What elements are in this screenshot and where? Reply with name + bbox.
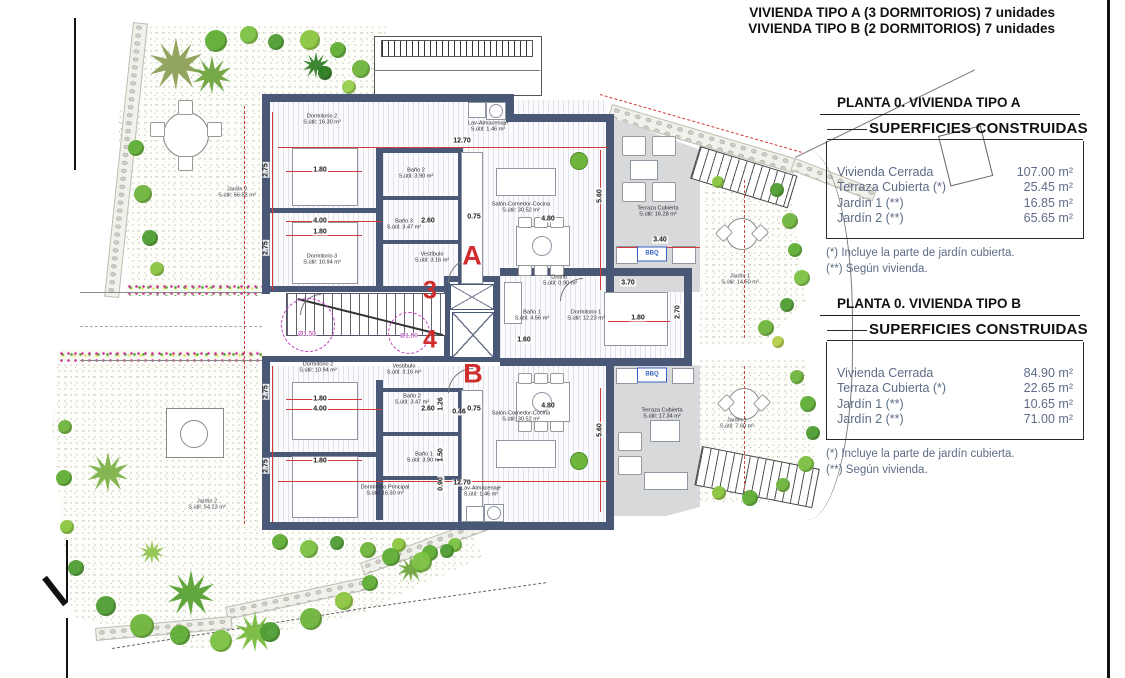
shrub-icon xyxy=(210,630,232,652)
dimension-label: 2.70 xyxy=(675,304,682,320)
room-label: Lav-Almacenaje S.útil: 1.46 m² xyxy=(468,121,508,134)
garden-chair xyxy=(150,122,165,137)
unit-letter: A xyxy=(462,243,482,270)
room-label: Baño 1 S.útil: 3.90 m² xyxy=(407,452,442,465)
room-label: Dormitorio 1 S.útil: 12.23 m² xyxy=(567,310,605,323)
sofa xyxy=(496,168,556,196)
shrub-icon xyxy=(96,596,116,616)
panel-a-rows: Vivienda Cerrada 107.00 m² Terraza Cubie… xyxy=(837,165,1073,226)
surface-label: Jardín 1 (**) xyxy=(837,196,904,211)
room-label: Terraza Cubierta S.útil: 17.34 m² xyxy=(641,408,682,421)
unit-letter: B xyxy=(463,361,483,388)
garden-label: Jardín 1 S.útil: 7.60 m² xyxy=(720,418,755,431)
surface-value: 10.65 m² xyxy=(1024,397,1073,412)
shrub-icon xyxy=(790,370,804,384)
room-area: S.útil: 10.94 m² xyxy=(299,368,337,374)
room-area: S.útil: 16.30 m² xyxy=(303,120,341,126)
section-mark xyxy=(66,618,68,678)
garden-label: Jardín 2 S.útil: 56.52 m² xyxy=(218,187,256,200)
room-area: S.útil: 30.52 m² xyxy=(492,208,550,214)
shrub-icon xyxy=(794,270,810,286)
dimension-label: 2.75 xyxy=(263,458,270,474)
garden-table xyxy=(163,112,209,158)
upper-terrace-railing xyxy=(381,40,533,57)
dimension-label: 4.00 xyxy=(312,406,328,413)
garden-chair xyxy=(207,122,222,137)
surface-row: Terraza Cubierta (*) 25.45 m² xyxy=(837,180,1073,195)
room-label: Salón-Comedor-Cocina S.útil: 30.52 m² xyxy=(492,411,550,424)
shrub-icon xyxy=(788,243,802,257)
wall xyxy=(262,356,464,362)
partition xyxy=(262,208,382,213)
panel-b-notes: (*) Incluye la parte de jardín cubierta.… xyxy=(826,447,1082,478)
washer xyxy=(466,506,484,522)
dimension-label: 1.80 xyxy=(312,458,328,465)
terrace-chair xyxy=(622,182,646,202)
shrub-icon xyxy=(142,230,158,246)
path-centerline xyxy=(80,326,262,327)
surface-value: 22.65 m² xyxy=(1024,381,1073,396)
dimension-label: 2.75 xyxy=(263,240,270,256)
panel-tipo-b: PLANTA 0. VIVIENDA TIPO B SUPERFICIES CO… xyxy=(820,296,1082,478)
washer-drum xyxy=(487,506,501,520)
shrub-icon xyxy=(780,298,794,312)
surface-label: Vivienda Cerrada xyxy=(837,366,933,381)
dimension-label: 3.40 xyxy=(652,237,668,244)
garden-area: S.útil: 7.60 m² xyxy=(720,424,755,430)
surface-label: Terraza Cubierta (*) xyxy=(837,180,946,195)
diameter-label: Ø1,50 xyxy=(298,331,316,338)
shrub-icon xyxy=(240,26,258,44)
drawing-title: VIVIENDA TIPO A (3 DORMITORIOS) 7 unidad… xyxy=(748,5,1055,37)
wall xyxy=(606,114,614,292)
dimension-label: 1.60 xyxy=(516,337,532,344)
outdoor-counter xyxy=(616,246,638,264)
sheet-border-left xyxy=(74,18,76,170)
terrace-sofa xyxy=(644,472,688,490)
shrub-icon xyxy=(130,614,154,638)
shrub-icon xyxy=(170,625,190,645)
washer-drum xyxy=(489,104,503,118)
garden-chair xyxy=(178,100,193,115)
garden-area: S.útil: 56.52 m² xyxy=(218,193,256,199)
dimension-label: 4.80 xyxy=(540,216,556,223)
partition xyxy=(383,196,463,200)
room-label: Terraza Cubierta S.útil: 16.28 m² xyxy=(637,206,678,219)
surface-row: Jardín 1 (**) 10.65 m² xyxy=(837,397,1073,412)
shrub-icon xyxy=(330,42,346,58)
shrub-icon xyxy=(382,548,400,566)
footnote: (*) Incluye la parte de jardín cubierta. xyxy=(826,246,1082,262)
room-area: S.útil: 12.23 m² xyxy=(567,316,605,322)
diameter-label: Ø1,50 xyxy=(400,333,418,340)
wall xyxy=(684,268,692,366)
room-label: Distrib. S.útil: 0.90 m² xyxy=(543,275,578,288)
surface-row: Jardín 2 (**) 71.00 m² xyxy=(837,412,1073,427)
shrub-icon xyxy=(134,185,152,203)
elevator-wall xyxy=(494,276,500,362)
chair xyxy=(550,421,564,432)
terrace-table xyxy=(630,160,658,180)
table-lamp xyxy=(532,236,552,256)
partition xyxy=(376,148,383,288)
room-label: Vestíbulo S.útil: 3.16 m² xyxy=(387,364,422,377)
outdoor-counter xyxy=(672,246,696,264)
shrub-icon xyxy=(772,336,784,348)
room-area: S.útil: 3.16 m² xyxy=(387,370,422,376)
chair xyxy=(518,265,532,276)
surface-label: Terraza Cubierta (*) xyxy=(837,381,946,396)
room-label: Dormitorio Principal S.útil: 16.30 m² xyxy=(361,485,410,498)
bbq-box: BBQ xyxy=(637,368,667,383)
plant-pot xyxy=(570,452,588,470)
room-area: S.útil: 3.90 m² xyxy=(407,458,442,464)
dim-line xyxy=(286,221,382,222)
garden-chair xyxy=(178,156,193,171)
wall xyxy=(262,94,474,102)
shrub-icon xyxy=(56,470,72,486)
panel-b-rule xyxy=(820,315,1080,316)
room-area: S.útil: 1.46 m² xyxy=(468,127,508,133)
elevator-cab xyxy=(450,284,494,310)
partition xyxy=(376,380,383,520)
boundary-red-dashed xyxy=(244,106,245,524)
room-area: S.útil: 3.90 m² xyxy=(399,174,434,180)
wall xyxy=(506,114,614,122)
panel-b-rows: Vivienda Cerrada 84.90 m² Terraza Cubier… xyxy=(837,366,1073,427)
chair xyxy=(518,217,532,228)
bbq-box: BBQ xyxy=(637,247,667,262)
shrub-icon xyxy=(300,540,318,558)
garden-area: S.útil: 14.50 m² xyxy=(721,280,759,286)
surface-label: Jardín 2 (**) xyxy=(837,211,904,226)
panel-a-rule xyxy=(820,114,1080,115)
room-label: Dormitorio 3 S.útil: 10.94 m² xyxy=(303,254,341,267)
shrub-icon xyxy=(128,140,144,156)
shrub-icon xyxy=(758,320,774,336)
dimension-label: 2.60 xyxy=(420,218,436,225)
shrub-icon xyxy=(272,534,288,550)
room-area: S.útil: 16.30 m² xyxy=(361,491,410,497)
wall xyxy=(606,360,614,528)
surface-label: Jardín 2 (**) xyxy=(837,412,904,427)
surface-row: Terraza Cubierta (*) 22.65 m² xyxy=(837,381,1073,396)
bed xyxy=(292,148,358,206)
outdoor-counter xyxy=(672,368,694,384)
room-area: S.útil: 3.47 m² xyxy=(387,225,422,231)
shrub-icon xyxy=(362,575,378,591)
garden-area: S.útil: 54.23 m² xyxy=(188,505,226,511)
terrace-chair xyxy=(618,432,642,451)
dimension-label: 5.60 xyxy=(597,422,604,438)
shrub-icon xyxy=(712,486,726,500)
garden-label: Jardín 1 S.útil: 14.50 m² xyxy=(721,274,759,287)
chair xyxy=(518,373,532,384)
shrub-icon xyxy=(770,183,784,197)
footnote: (*) Incluye la parte de jardín cubierta. xyxy=(826,447,1082,463)
room-area: S.útil: 16.28 m² xyxy=(637,212,678,218)
bed xyxy=(292,456,358,518)
garden-red-dashed xyxy=(744,180,745,338)
dimension-label: 1.50 xyxy=(438,447,445,463)
unit-letter: 3 xyxy=(423,279,437,304)
surface-value: 84.90 m² xyxy=(1024,366,1073,381)
title-line-b: VIVIENDA TIPO B (2 DORMITORIOS) 7 unidad… xyxy=(748,21,1055,37)
picnic-table-top xyxy=(180,420,208,448)
upper-terrace-line xyxy=(374,70,540,71)
surface-label: Jardín 1 (**) xyxy=(837,397,904,412)
shrub-icon xyxy=(806,426,820,440)
shrub-icon xyxy=(800,396,816,412)
room-area: S.útil: 30.52 m² xyxy=(492,417,550,423)
section-mark-diagonal xyxy=(42,576,68,606)
panel-a-notes: (*) Incluye la parte de jardín cubierta.… xyxy=(826,246,1082,277)
shrub-icon xyxy=(150,262,164,276)
room-area: S.útil: 0.90 m² xyxy=(543,281,578,287)
dimension-label: 12.70 xyxy=(452,480,472,487)
shrub-icon xyxy=(782,213,798,229)
terrace-chair xyxy=(622,136,646,156)
room-label: Baño 1 S.útil: 4.56 m² xyxy=(515,310,550,323)
shrub-icon xyxy=(360,542,376,558)
shrub-icon xyxy=(440,544,454,558)
room-area: S.útil: 1.46 m² xyxy=(461,492,501,498)
room-label: Lav-Almacenaje S.útil: 1.46 m² xyxy=(461,486,501,499)
shrub-icon xyxy=(68,560,84,576)
dimension-label: 3.70 xyxy=(620,280,636,287)
dimension-label: 0.75 xyxy=(466,406,482,413)
dimension-label: 12.70 xyxy=(452,138,472,145)
surface-row: Vivienda Cerrada 107.00 m² xyxy=(837,165,1073,180)
box-top-segment xyxy=(827,330,867,331)
shrub-icon xyxy=(60,520,74,534)
dimension-label: 1.80 xyxy=(312,229,328,236)
sheet-border-right xyxy=(1107,0,1110,678)
room-label: Vestíbulo S.útil: 3.16 m² xyxy=(415,252,450,265)
unit-letter: 4 xyxy=(423,328,437,353)
dimension-label: 4.80 xyxy=(540,403,556,410)
shrub-icon xyxy=(260,622,280,642)
shrub-icon xyxy=(342,80,356,94)
palm-icon xyxy=(168,570,214,616)
room-area: S.útil: 17.34 m² xyxy=(641,414,682,420)
palm-icon xyxy=(88,452,128,492)
surface-value: 16.85 m² xyxy=(1024,196,1073,211)
dim-line xyxy=(272,366,273,522)
dimension-label: 1.26 xyxy=(438,396,445,412)
dim-line xyxy=(278,147,608,148)
wall xyxy=(262,522,614,530)
dimension-label: 0.46 xyxy=(451,409,467,416)
chair xyxy=(534,373,548,384)
shrub-icon xyxy=(712,176,724,188)
sofa xyxy=(496,440,556,468)
shrub-icon xyxy=(58,420,72,434)
shrub-icon xyxy=(742,490,758,506)
shrub-icon xyxy=(798,456,814,472)
shrub-icon xyxy=(776,478,790,492)
room-label: Baño 2 S.útil: 3.90 m² xyxy=(399,168,434,181)
outdoor-counter xyxy=(616,368,638,384)
room-label: Baño 3 S.útil: 3.47 m² xyxy=(387,219,422,232)
flower-bed-top xyxy=(126,283,262,296)
shrub-icon xyxy=(300,608,322,630)
shrub-icon xyxy=(318,66,332,80)
dim-line xyxy=(600,388,601,512)
panel-b-surface-box: SUPERFICIES CONSTRUIDAS Vivienda Cerrada… xyxy=(826,342,1084,440)
shrub-icon xyxy=(352,60,370,78)
path-edge-top xyxy=(80,292,262,293)
surface-value: 65.65 m² xyxy=(1024,211,1073,226)
wall xyxy=(500,358,692,366)
surface-row: Vivienda Cerrada 84.90 m² xyxy=(837,366,1073,381)
title-line-a: VIVIENDA TIPO A (3 DORMITORIOS) 7 unidad… xyxy=(748,5,1055,21)
dim-line xyxy=(600,150,601,290)
shrub-icon xyxy=(205,30,227,52)
chair xyxy=(550,373,564,384)
partition xyxy=(383,240,463,244)
room-label: Dormitorio 2 S.útil: 10.94 m² xyxy=(299,362,337,375)
shrub-icon xyxy=(412,552,432,572)
surface-row: Jardín 1 (**) 16.85 m² xyxy=(837,196,1073,211)
dimension-label: 2.75 xyxy=(263,384,270,400)
surface-row: Jardín 2 (**) 65.65 m² xyxy=(837,211,1073,226)
panel-b-title: PLANTA 0. VIVIENDA TIPO B xyxy=(837,296,1082,311)
dim-line xyxy=(272,112,273,290)
room-area: S.útil: 10.94 m² xyxy=(303,260,341,266)
box-title-rule xyxy=(827,139,1083,140)
shrub-icon xyxy=(300,30,320,50)
terrace-table xyxy=(650,420,680,442)
terrace-chair xyxy=(618,456,642,475)
terrace-chair xyxy=(652,136,676,156)
partition xyxy=(383,476,463,480)
room-area: S.útil: 4.56 m² xyxy=(515,316,550,322)
panel-b-box-title: SUPERFICIES CONSTRUIDAS xyxy=(869,321,1088,338)
shrub-icon xyxy=(330,536,344,550)
surface-value: 71.00 m² xyxy=(1024,412,1073,427)
panel-a-surface-box: SUPERFICIES CONSTRUIDAS Vivienda Cerrada… xyxy=(826,141,1084,239)
garden-label: Jardín 2 S.útil: 54.23 m² xyxy=(188,499,226,512)
footnote: (**) Según vivienda. xyxy=(826,463,1082,479)
surface-value: 107.00 m² xyxy=(1017,165,1073,180)
panel-tipo-a: PLANTA 0. VIVIENDA TIPO A SUPERFICIES CO… xyxy=(820,95,1082,277)
box-top-segment xyxy=(827,129,867,130)
dim-line xyxy=(286,409,382,410)
shrub-icon xyxy=(335,592,353,610)
panel-a-box-title: SUPERFICIES CONSTRUIDAS xyxy=(869,120,1088,137)
dimension-label: 2.75 xyxy=(263,162,270,178)
dimension-label: 2.60 xyxy=(420,406,436,413)
dimension-label: 1.80 xyxy=(312,167,328,174)
palm-icon xyxy=(140,540,164,564)
partition xyxy=(383,148,463,153)
surface-label: Vivienda Cerrada xyxy=(837,165,933,180)
shrub-icon xyxy=(268,34,284,50)
room-label: Salón-Comedor-Cocina S.útil: 30.52 m² xyxy=(492,202,550,215)
turning-circle xyxy=(281,298,335,352)
plant-pot xyxy=(570,152,588,170)
washer xyxy=(468,102,486,118)
partition xyxy=(383,432,463,436)
terrace-chair xyxy=(652,182,676,202)
box-title-rule xyxy=(827,340,1083,341)
dimension-label: 0.75 xyxy=(466,214,482,221)
wall xyxy=(262,94,270,294)
panel-a-title: PLANTA 0. VIVIENDA TIPO A xyxy=(837,95,1082,110)
dimension-label: 5.60 xyxy=(597,188,604,204)
shower-tray xyxy=(452,312,494,358)
path-edge-bottom xyxy=(80,360,262,361)
room-label: Dormitorio 2 S.útil: 16.30 m² xyxy=(303,114,341,127)
dimension-label: 0.90 xyxy=(438,476,445,492)
room-area: S.útil: 3.16 m² xyxy=(415,258,450,264)
dimension-label: 1.80 xyxy=(312,396,328,403)
room-label: Baño 2 S.útil: 3.47 m² xyxy=(395,394,430,407)
palm-icon xyxy=(193,56,231,94)
dimension-label: 1.80 xyxy=(630,315,646,322)
surface-value: 25.45 m² xyxy=(1024,180,1073,195)
dimension-label: 4.00 xyxy=(312,218,328,225)
footnote: (**) Según vivienda. xyxy=(826,262,1082,278)
site-plan-sheet: VIVIENDA TIPO A (3 DORMITORIOS) 7 unidad… xyxy=(0,0,1125,678)
